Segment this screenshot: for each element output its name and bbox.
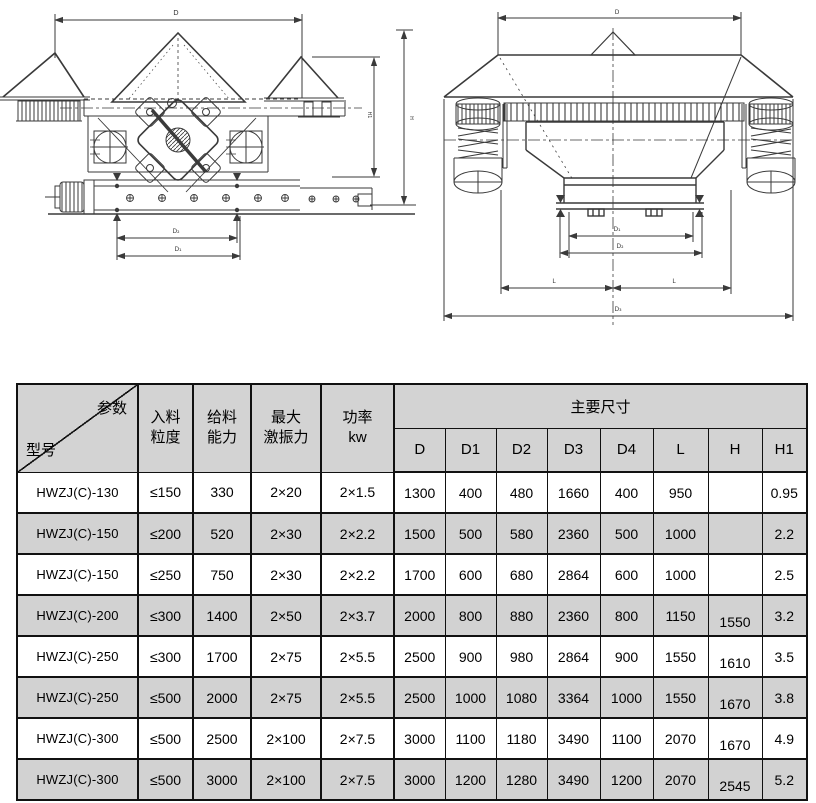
cell-power: 2×7.5: [321, 718, 394, 759]
cell-D: 1300: [394, 472, 445, 513]
cell-D4: 500: [600, 513, 653, 554]
cell-D1: 1200: [445, 759, 496, 800]
cell-power: 2×1.5: [321, 472, 394, 513]
cell-D3: 2360: [547, 595, 600, 636]
cell-D2: 480: [496, 472, 547, 513]
cell-force: 2×30: [251, 513, 321, 554]
cell-D3: 3490: [547, 759, 600, 800]
cell-H: 1670: [708, 677, 762, 718]
cell-D3: 2360: [547, 513, 600, 554]
cell-D4: 1100: [600, 718, 653, 759]
header-dim-D3: D3: [547, 428, 600, 472]
cell-D2: 1280: [496, 759, 547, 800]
cell-force: 2×75: [251, 636, 321, 677]
cell-size: ≤150: [138, 472, 193, 513]
dim-label-D3: D₃: [614, 306, 622, 313]
hatch-band: [504, 103, 744, 121]
cell-power: 2×2.2: [321, 554, 394, 595]
cell-D4: 1200: [600, 759, 653, 800]
cell-D2: 1180: [496, 718, 547, 759]
cell-D: 2500: [394, 677, 445, 718]
cell-D: 2000: [394, 595, 445, 636]
dim-label-H: H: [408, 116, 414, 120]
cell-power: 2×3.7: [321, 595, 394, 636]
table-row: HWZJ(C)-300≤50025002×1002×7.530001100118…: [17, 718, 807, 759]
cell-D2: 580: [496, 513, 547, 554]
cell-D2: 1080: [496, 677, 547, 718]
header-power-l2: kw: [322, 428, 393, 448]
cell-D: 1700: [394, 554, 445, 595]
cell-H: 1610: [708, 636, 762, 677]
header-capacity: 给料 能力: [193, 384, 251, 472]
cell-D2: 680: [496, 554, 547, 595]
corner-cell: 参数 型号: [17, 384, 138, 472]
cell-size: ≤200: [138, 513, 193, 554]
cell-capacity: 750: [193, 554, 251, 595]
vibrator-cluster: [134, 96, 221, 183]
header-dim-D4: D4: [600, 428, 653, 472]
front-view-drawing: D: [436, 0, 816, 330]
dim-outlet-outer: D₂: [560, 212, 702, 258]
cell-D3: 3490: [547, 718, 600, 759]
header-capacity-l1: 给料: [194, 408, 250, 428]
cell-capacity: 1400: [193, 595, 251, 636]
cell-D4: 800: [600, 595, 653, 636]
cell-model: HWZJ(C)-250: [17, 677, 138, 718]
outlet-clamps: [556, 195, 704, 217]
cell-size: ≤500: [138, 759, 193, 800]
header-capacity-l2: 能力: [194, 428, 250, 448]
cell-D3: 2864: [547, 554, 600, 595]
page: D H H1: [0, 0, 816, 803]
cell-force: 2×50: [251, 595, 321, 636]
header-dim-D: D: [394, 428, 445, 472]
cell-model: HWZJ(C)-250: [17, 636, 138, 677]
cell-capacity: 520: [193, 513, 251, 554]
table-row: HWZJ(C)-250≤30017002×752×5.5250090098028…: [17, 636, 807, 677]
header-force-l2: 激振力: [252, 428, 320, 448]
cell-D3: 3364: [547, 677, 600, 718]
cell-H: 2545: [708, 759, 762, 800]
cell-D1: 600: [445, 554, 496, 595]
cell-power: 2×5.5: [321, 677, 394, 718]
cell-D4: 900: [600, 636, 653, 677]
header-force-l1: 最大: [252, 408, 320, 428]
side-view-drawing: D H H1: [0, 0, 430, 295]
cell-model: HWZJ(C)-300: [17, 759, 138, 800]
cell-capacity: 1700: [193, 636, 251, 677]
cell-H1: 3.8: [762, 677, 807, 718]
header-dim-H: H: [708, 428, 762, 472]
header-force: 最大 激振力: [251, 384, 321, 472]
dim-spring-span: L L: [501, 190, 731, 294]
cell-capacity: 3000: [193, 759, 251, 800]
cell-size: ≤500: [138, 718, 193, 759]
right-spring-assembly: [742, 98, 795, 193]
table-row: HWZJ(C)-200≤30014002×502×3.7200080088023…: [17, 595, 807, 636]
left-spring-assembly: [454, 98, 507, 193]
cell-power: 2×2.2: [321, 513, 394, 554]
cell-H: 1550: [708, 595, 762, 636]
cell-D4: 400: [600, 472, 653, 513]
cell-L: 1000: [653, 513, 708, 554]
cell-D4: 600: [600, 554, 653, 595]
cell-D1: 500: [445, 513, 496, 554]
header-main-dimensions: 主要尺寸: [394, 384, 807, 428]
cell-model: HWZJ(C)-130: [17, 472, 138, 513]
cell-H: [708, 554, 762, 595]
header-power: 功率 kw: [321, 384, 394, 472]
cell-D: 2500: [394, 636, 445, 677]
cell-L: 2070: [653, 718, 708, 759]
header-feed-size-l1: 入料: [139, 408, 192, 428]
dim-label-D1: D₁: [174, 246, 182, 253]
cell-H: [708, 472, 762, 513]
cell-capacity: 330: [193, 472, 251, 513]
cell-size: ≤300: [138, 595, 193, 636]
spec-table-wrap: 参数 型号 入料 粒度 给料 能力 最大 激振力: [16, 383, 808, 801]
cell-D1: 400: [445, 472, 496, 513]
dim-label-D: D: [615, 9, 620, 16]
cell-H1: 2.5: [762, 554, 807, 595]
header-feed-size-l2: 粒度: [139, 428, 192, 448]
cell-D1: 1100: [445, 718, 496, 759]
cell-H1: 5.2: [762, 759, 807, 800]
table-row: HWZJ(C)-300≤50030002×1002×7.530001200128…: [17, 759, 807, 800]
cell-L: 1550: [653, 636, 708, 677]
cell-D: 3000: [394, 718, 445, 759]
cell-H: [708, 513, 762, 554]
cell-L: 2070: [653, 759, 708, 800]
table-row: HWZJ(C)-150≤2507502×302×2.21700600680286…: [17, 554, 807, 595]
corner-param-label: 参数: [97, 397, 127, 418]
cell-power: 2×7.5: [321, 759, 394, 800]
cell-size: ≤500: [138, 677, 193, 718]
dim-label-D: D: [173, 9, 178, 17]
cell-D2: 980: [496, 636, 547, 677]
dim-outlet-inner: D₁: [569, 212, 693, 258]
dim-top-width: D: [498, 9, 741, 55]
center-cone: [112, 33, 245, 102]
header-row-1: 参数 型号 入料 粒度 给料 能力 最大 激振力: [17, 384, 807, 428]
cell-size: ≤300: [138, 636, 193, 677]
table-row: HWZJ(C)-130≤1503302×202×1.51300400480166…: [17, 472, 807, 513]
cell-model: HWZJ(C)-200: [17, 595, 138, 636]
cell-model: HWZJ(C)-150: [17, 513, 138, 554]
cell-D4: 1000: [600, 677, 653, 718]
left-roof: [0, 53, 90, 121]
cell-D3: 1660: [547, 472, 600, 513]
cell-model: HWZJ(C)-150: [17, 554, 138, 595]
feeder-trough: [45, 180, 415, 214]
cell-capacity: 2000: [193, 677, 251, 718]
dim-label-D1: D₁: [613, 226, 621, 233]
cell-H1: 2.2: [762, 513, 807, 554]
header-dim-D1: D1: [445, 428, 496, 472]
cell-D1: 800: [445, 595, 496, 636]
header-power-l1: 功率: [322, 408, 393, 428]
cell-power: 2×5.5: [321, 636, 394, 677]
cell-H1: 3.2: [762, 595, 807, 636]
cell-H: 1670: [708, 718, 762, 759]
cell-L: 1000: [653, 554, 708, 595]
cell-capacity: 2500: [193, 718, 251, 759]
cell-model: HWZJ(C)-300: [17, 718, 138, 759]
header-dim-L: L: [653, 428, 708, 472]
cell-D: 1500: [394, 513, 445, 554]
header-dim-H1: H1: [762, 428, 807, 472]
cell-force: 2×20: [251, 472, 321, 513]
cell-H1: 4.9: [762, 718, 807, 759]
cell-force: 2×100: [251, 718, 321, 759]
dim-label-D2: D₂: [616, 243, 624, 250]
dim-bottom-upper: D₂: [117, 216, 237, 260]
cell-force: 2×30: [251, 554, 321, 595]
table-row: HWZJ(C)-250≤50020002×752×5.5250010001080…: [17, 677, 807, 718]
cell-D1: 1000: [445, 677, 496, 718]
table-row: HWZJ(C)-150≤2005202×302×2.21500500580236…: [17, 513, 807, 554]
cell-H1: 3.5: [762, 636, 807, 677]
header-feed-size: 入料 粒度: [138, 384, 193, 472]
spec-table: 参数 型号 入料 粒度 给料 能力 最大 激振力: [16, 383, 808, 801]
dim-label-L-right: L: [672, 278, 676, 285]
cell-L: 950: [653, 472, 708, 513]
cell-L: 1550: [653, 677, 708, 718]
cell-D3: 2864: [547, 636, 600, 677]
cell-size: ≤250: [138, 554, 193, 595]
table-body: HWZJ(C)-130≤1503302×202×1.51300400480166…: [17, 472, 807, 800]
cell-D: 3000: [394, 759, 445, 800]
cell-D1: 900: [445, 636, 496, 677]
trough-bolts: [127, 195, 360, 203]
dim-label-H1: H1: [366, 112, 372, 119]
dim-label-L-left: L: [552, 278, 556, 285]
cell-force: 2×75: [251, 677, 321, 718]
dim-height-outer: H: [370, 30, 416, 205]
header-dim-D2: D2: [496, 428, 547, 472]
dim-label-D2: D₂: [172, 228, 180, 235]
cell-L: 1150: [653, 595, 708, 636]
dim-top-width: D: [55, 9, 302, 98]
cell-D2: 880: [496, 595, 547, 636]
corner-model-label: 型号: [26, 439, 56, 460]
cell-force: 2×100: [251, 759, 321, 800]
cell-H1: 0.95: [762, 472, 807, 513]
